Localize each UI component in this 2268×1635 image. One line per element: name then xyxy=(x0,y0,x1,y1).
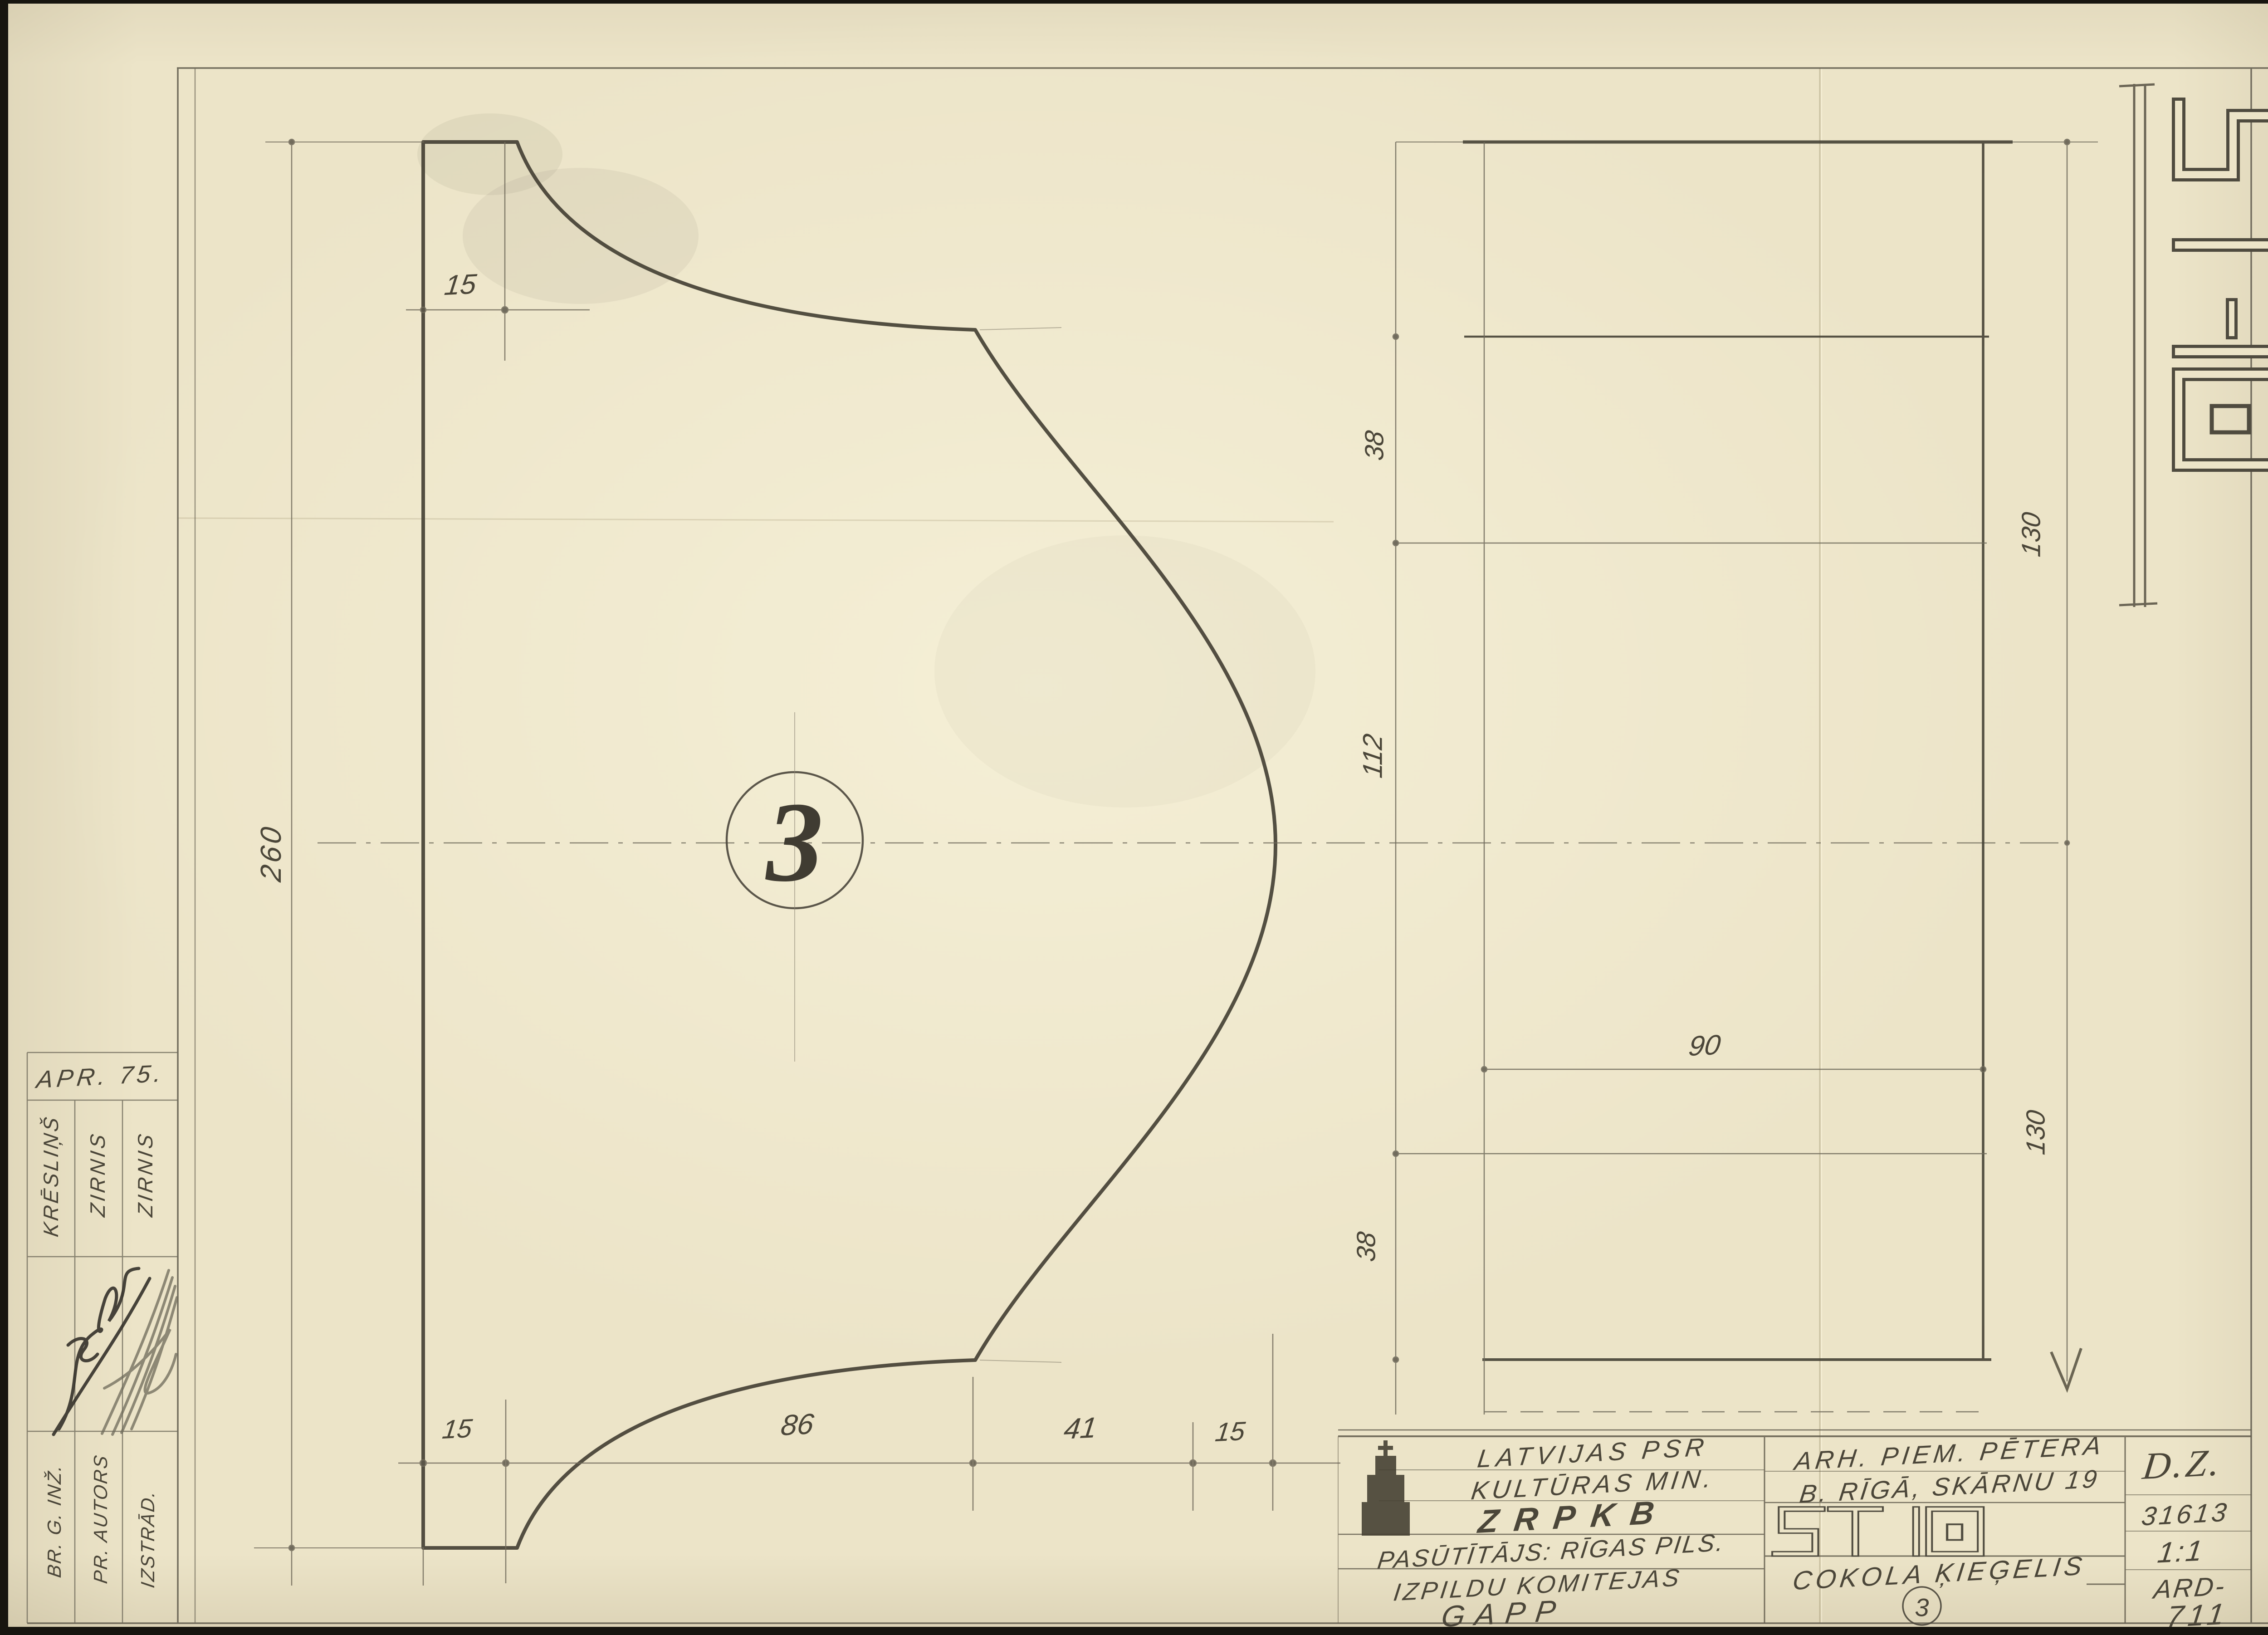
title-scale: 1:1 xyxy=(2156,1533,2206,1569)
sheet-border xyxy=(27,68,2268,1623)
plan-outline xyxy=(1463,142,2013,1360)
balloon-number: 3 xyxy=(766,776,823,908)
margin-name-3: ZIRNIS xyxy=(133,1130,157,1218)
riga-castle-icon xyxy=(1362,1440,1410,1536)
title-sheet-number: 711 xyxy=(2165,1596,2231,1634)
signatures xyxy=(54,1268,177,1434)
drawing-sheet: APR. 75. KRĒSLIŅŠ ZIRNIS ZIRNIS BR. G. I… xyxy=(0,0,2268,1635)
margin-role-2: PR. AUTORS xyxy=(90,1453,112,1585)
pencil-linework xyxy=(0,0,2268,1635)
margin-name-1: KRĒSLIŅŠ xyxy=(39,1113,63,1238)
margin-role-1: BR. G. INŽ. xyxy=(44,1463,65,1579)
dim-bottom-86: 86 xyxy=(779,1407,816,1442)
dim-bottom-41: 41 xyxy=(1062,1410,1099,1446)
title-part-number: 3 xyxy=(1915,1593,1929,1622)
dim-bottom-15b: 15 xyxy=(1213,1416,1246,1448)
title-client-line3: GAPP xyxy=(1440,1593,1568,1634)
title-code: D.Z. xyxy=(2141,1440,2225,1488)
dim-plan-38-top: 38 xyxy=(1359,429,1390,462)
dim-plan-38-bottom: 38 xyxy=(1351,1230,1382,1263)
title-doc-number: 31613 xyxy=(2140,1497,2231,1532)
dim-plan-112: 112 xyxy=(1357,732,1388,779)
signature-kreslins xyxy=(54,1268,150,1434)
margin-role-3: IZSTRĀD. xyxy=(137,1488,159,1589)
dim-plan-90: 90 xyxy=(1687,1029,1722,1063)
dim-height-260: 260 xyxy=(254,822,288,883)
margin-name-2: ZIRNIS xyxy=(85,1130,110,1218)
plan-inner-lines xyxy=(1393,139,2098,1415)
dim-bottom-15a: 15 xyxy=(440,1413,474,1445)
dim-top-15: 15 xyxy=(443,268,478,302)
profile-outline xyxy=(423,142,1276,1548)
dim-plan-130-top: 130 xyxy=(2016,510,2047,558)
dim-plan-130-bottom: 130 xyxy=(2021,1108,2051,1156)
corner-stamp-logo xyxy=(2119,84,2268,607)
